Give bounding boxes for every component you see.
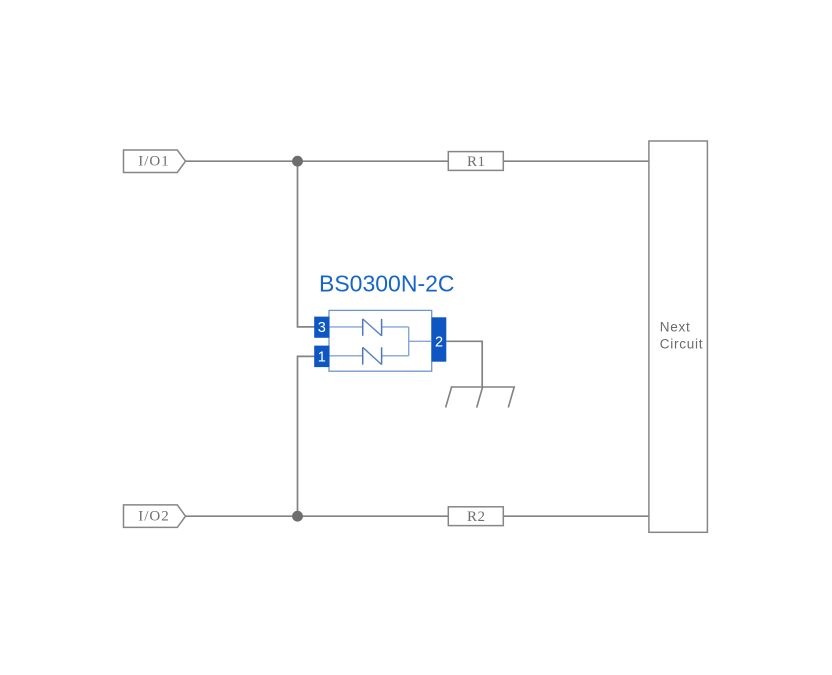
svg-text:I/O2: I/O2 [138,509,170,525]
svg-text:R1: R1 [467,154,486,170]
svg-text:2: 2 [435,334,443,350]
svg-text:I/O1: I/O1 [138,154,170,170]
svg-text:Circuit: Circuit [660,337,704,352]
svg-text:3: 3 [318,320,326,336]
svg-text:Next: Next [660,320,691,335]
svg-text:BS0300N-2C: BS0300N-2C [319,271,455,297]
svg-text:1: 1 [318,350,326,366]
svg-text:R2: R2 [467,509,486,525]
